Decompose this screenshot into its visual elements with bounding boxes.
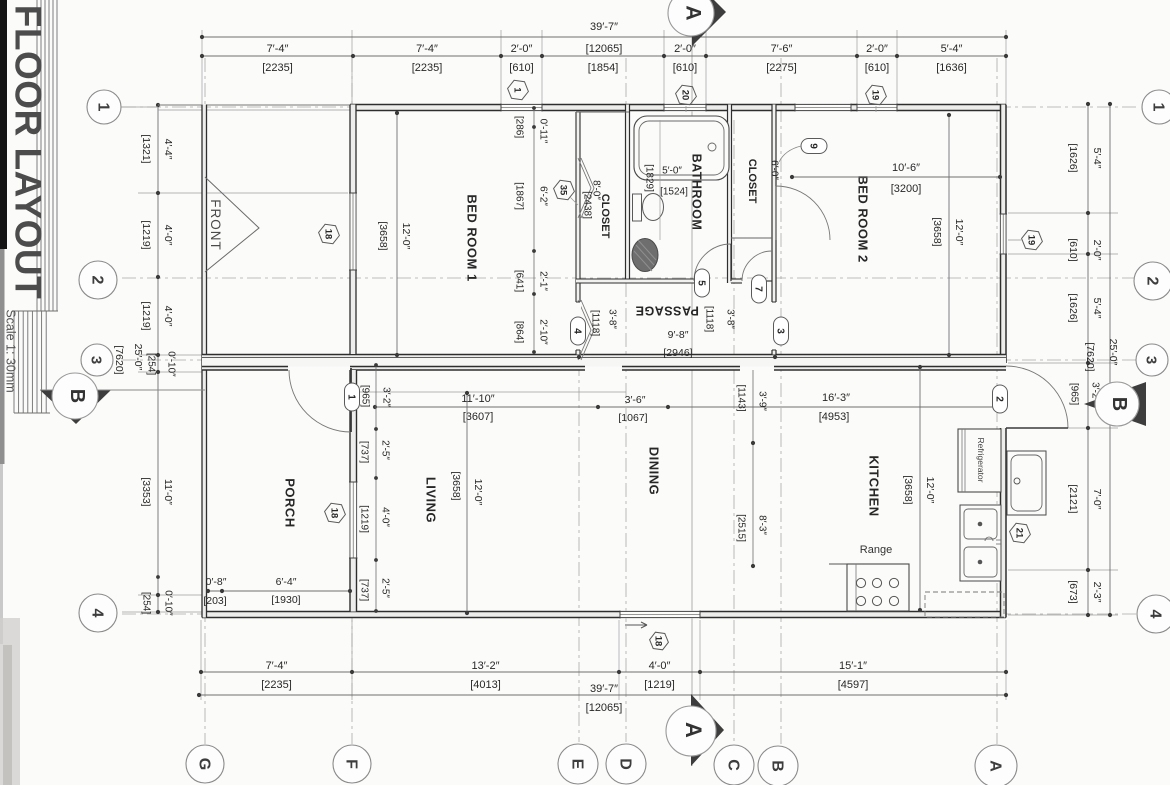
svg-text:39′-7″: 39′-7″: [590, 21, 618, 33]
svg-text:[737]: [737]: [358, 441, 369, 463]
svg-text:BED ROOM 2: BED ROOM 2: [855, 175, 870, 262]
svg-text:5′-0″: 5′-0″: [662, 166, 682, 177]
svg-text:[1219]: [1219]: [644, 679, 675, 691]
svg-text:[1829]: [1829]: [643, 164, 654, 192]
svg-text:2′-1″: 2′-1″: [537, 271, 548, 291]
svg-text:12′-0″: 12′-0″: [953, 219, 965, 246]
svg-text:15′-1″: 15′-1″: [839, 660, 867, 672]
svg-text:BATHROOM: BATHROOM: [690, 154, 704, 231]
svg-text:B: B: [1108, 397, 1130, 411]
svg-text:4′-0″: 4′-0″: [649, 660, 671, 672]
svg-text:Scale 1: 30mm: Scale 1: 30mm: [4, 309, 18, 392]
svg-text:18: 18: [323, 229, 334, 240]
svg-text:FLOOR LAYOUT: FLOOR LAYOUT: [8, 5, 49, 299]
svg-text:[2515]: [2515]: [735, 514, 746, 542]
svg-text:0′-8″: 0′-8″: [206, 576, 227, 588]
svg-text:[1626]: [1626]: [1067, 143, 1079, 172]
svg-text:DINING: DINING: [646, 447, 661, 496]
svg-text:4: 4: [88, 609, 105, 618]
svg-text:[965]: [965]: [359, 385, 370, 407]
svg-text:12′-0″: 12′-0″: [924, 477, 936, 504]
svg-text:[864]: [864]: [513, 321, 524, 343]
svg-text:G: G: [195, 758, 212, 770]
svg-text:2: 2: [993, 396, 1004, 402]
svg-text:4′-0″: 4′-0″: [162, 306, 174, 327]
svg-text:4′-4″: 4′-4″: [162, 139, 174, 160]
svg-text:[3200]: [3200]: [891, 183, 922, 195]
svg-text:[286]: [286]: [513, 116, 524, 138]
svg-text:[1143]: [1143]: [735, 384, 746, 411]
svg-text:[7620]: [7620]: [1084, 342, 1096, 371]
svg-text:[3658]: [3658]: [902, 475, 914, 504]
svg-text:[965]: [965]: [1068, 383, 1079, 405]
svg-text:[1636]: [1636]: [936, 62, 967, 74]
svg-text:KITCHEN: KITCHEN: [866, 455, 881, 516]
svg-text:12′-0″: 12′-0″: [400, 223, 412, 250]
svg-text:[1219]: [1219]: [358, 505, 369, 533]
svg-text:7′-4″: 7′-4″: [266, 660, 288, 672]
svg-text:8′-3″: 8′-3″: [756, 515, 767, 535]
svg-text:3: 3: [88, 356, 105, 364]
svg-text:[610]: [610]: [1067, 238, 1079, 261]
svg-text:39′-7″: 39′-7″: [590, 683, 618, 695]
svg-text:A: A: [986, 760, 1003, 772]
svg-text:25′-0″: 25′-0″: [1107, 339, 1119, 366]
svg-text:[1219]: [1219]: [140, 220, 152, 249]
svg-text:5′-4″: 5′-4″: [941, 43, 963, 55]
svg-text:C: C: [724, 759, 741, 771]
svg-text:E: E: [568, 759, 585, 770]
svg-text:4: 4: [571, 328, 582, 334]
svg-text:CLOSET: CLOSET: [599, 194, 611, 239]
svg-text:CLOSET: CLOSET: [746, 159, 758, 204]
svg-text:25′-0″: 25′-0″: [132, 344, 144, 371]
svg-text:3: 3: [774, 328, 785, 334]
svg-text:2′-0″: 2′-0″: [511, 43, 533, 55]
svg-text:3: 3: [1143, 356, 1160, 364]
svg-text:3′-8″: 3′-8″: [606, 309, 617, 329]
svg-text:[1321]: [1321]: [140, 134, 152, 163]
svg-text:[1067]: [1067]: [618, 412, 647, 424]
svg-text:4′-0″: 4′-0″: [162, 225, 174, 246]
svg-text:D: D: [616, 758, 633, 770]
svg-text:[1930]: [1930]: [271, 594, 300, 606]
svg-text:3′-8″: 3′-8″: [724, 309, 735, 329]
svg-text:[610]: [610]: [509, 62, 533, 74]
svg-text:[4013]: [4013]: [470, 679, 501, 691]
svg-text:9: 9: [807, 143, 818, 149]
svg-text:BED ROOM 1: BED ROOM 1: [464, 194, 479, 281]
svg-text:A: A: [681, 5, 704, 20]
svg-text:7′-4″: 7′-4″: [416, 43, 438, 55]
svg-text:[3658]: [3658]: [450, 471, 462, 500]
svg-text:12′-0″: 12′-0″: [472, 479, 484, 506]
svg-text:[3658]: [3658]: [377, 221, 389, 250]
svg-text:7′-0″: 7′-0″: [1091, 489, 1103, 510]
svg-text:7′-4″: 7′-4″: [267, 43, 289, 55]
svg-text:[673]: [673]: [1067, 580, 1079, 603]
svg-text:[3658]: [3658]: [931, 217, 943, 246]
svg-text:13′-2″: 13′-2″: [472, 660, 500, 672]
svg-text:2: 2: [88, 276, 105, 285]
svg-text:2′-5″: 2′-5″: [379, 578, 390, 598]
svg-text:[3353]: [3353]: [140, 477, 152, 506]
svg-text:[737]: [737]: [358, 579, 369, 601]
svg-text:9′-8″: 9′-8″: [668, 329, 689, 341]
svg-text:PORCH: PORCH: [282, 478, 297, 527]
svg-text:[2235]: [2235]: [412, 62, 443, 74]
svg-text:B: B: [66, 389, 88, 403]
svg-text:[2121]: [2121]: [1067, 484, 1079, 513]
svg-text:6′-0″: 6′-0″: [768, 160, 779, 180]
svg-text:21: 21: [1014, 528, 1025, 539]
svg-text:1: 1: [512, 87, 523, 93]
svg-text:10′-6″: 10′-6″: [892, 162, 920, 174]
svg-text:3′-2″: 3′-2″: [380, 387, 391, 407]
svg-text:[2235]: [2235]: [262, 62, 293, 74]
svg-text:[1219]: [1219]: [140, 301, 152, 330]
svg-text:[254]: [254]: [140, 592, 151, 614]
svg-text:[203]: [203]: [203, 595, 226, 607]
svg-text:[7620]: [7620]: [113, 345, 125, 374]
svg-text:PASSAGE: PASSAGE: [635, 304, 699, 318]
svg-text:7: 7: [752, 286, 763, 292]
svg-text:3′-9″: 3′-9″: [756, 391, 767, 411]
svg-text:19: 19: [1026, 235, 1037, 246]
svg-text:[2235]: [2235]: [261, 679, 292, 691]
svg-text:[4953]: [4953]: [819, 411, 850, 423]
svg-text:2: 2: [1143, 277, 1160, 286]
svg-text:6′-2″: 6′-2″: [537, 186, 548, 206]
svg-text:3′-6″: 3′-6″: [625, 394, 646, 406]
svg-text:A: A: [681, 722, 706, 738]
svg-text:19: 19: [870, 90, 881, 101]
svg-text:11′-0″: 11′-0″: [162, 479, 174, 505]
svg-text:F: F: [342, 759, 359, 769]
svg-text:2′-0″: 2′-0″: [866, 43, 888, 55]
svg-text:5′-4″: 5′-4″: [1091, 148, 1103, 169]
svg-text:[12065]: [12065]: [586, 702, 623, 714]
svg-text:1: 1: [1149, 103, 1166, 112]
svg-text:2′-3″: 2′-3″: [1091, 582, 1103, 603]
svg-text:Range: Range: [860, 544, 892, 556]
svg-text:[4597]: [4597]: [838, 679, 869, 691]
svg-text:[254]: [254]: [145, 353, 156, 375]
svg-text:0′-11″: 0′-11″: [537, 119, 548, 144]
svg-text:FRONT: FRONT: [208, 199, 223, 251]
svg-text:4′-0″: 4′-0″: [379, 507, 390, 527]
svg-text:2′-0″: 2′-0″: [1091, 240, 1103, 261]
svg-text:[2275]: [2275]: [766, 62, 797, 74]
svg-text:[610]: [610]: [865, 62, 889, 74]
svg-text:[1118]: [1118]: [703, 306, 714, 333]
svg-text:20: 20: [680, 90, 691, 101]
svg-text:[1118]: [1118]: [589, 310, 600, 337]
svg-text:16′-3″: 16′-3″: [822, 392, 850, 404]
svg-text:18: 18: [653, 636, 664, 647]
svg-text:0′-10″: 0′-10″: [165, 351, 176, 377]
svg-text:[1854]: [1854]: [588, 62, 619, 74]
svg-text:0′-10″: 0′-10″: [162, 590, 173, 616]
svg-text:1: 1: [94, 103, 111, 112]
svg-text:[1524]: [1524]: [660, 187, 688, 198]
svg-text:[2946]: [2946]: [663, 347, 692, 359]
svg-text:2′-5″: 2′-5″: [379, 440, 390, 460]
svg-text:35: 35: [558, 185, 569, 196]
svg-text:2′-10″: 2′-10″: [537, 319, 548, 345]
svg-text:[12065]: [12065]: [586, 43, 623, 55]
svg-text:[1867]: [1867]: [513, 182, 524, 210]
svg-text:6′-4″: 6′-4″: [276, 576, 297, 588]
svg-text:[641]: [641]: [513, 270, 524, 292]
svg-text:18: 18: [329, 508, 340, 519]
svg-text:5′-4″: 5′-4″: [1091, 298, 1103, 319]
svg-text:[1626]: [1626]: [1067, 293, 1079, 322]
svg-text:Refrigerator: Refrigerator: [976, 438, 986, 483]
svg-text:[610]: [610]: [673, 62, 697, 74]
svg-text:5: 5: [695, 280, 706, 286]
svg-text:[2438]: [2438]: [581, 191, 592, 219]
svg-text:LIVING: LIVING: [423, 477, 438, 523]
svg-text:7′-6″: 7′-6″: [771, 43, 793, 55]
svg-text:1: 1: [345, 394, 356, 400]
svg-text:B: B: [768, 760, 785, 772]
svg-text:4: 4: [1146, 610, 1163, 619]
